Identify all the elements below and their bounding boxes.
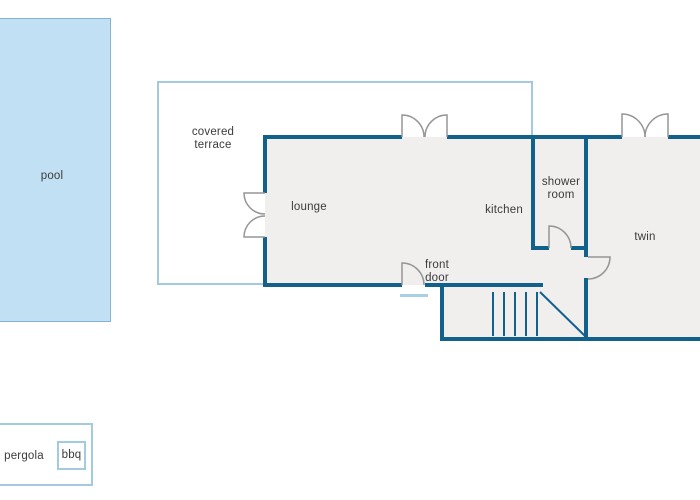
wall-segment [263,135,402,139]
twin-french-doors [622,114,668,137]
wall-segment [531,246,549,250]
pool-label: pool [14,170,90,183]
bbq-label: bbq [62,449,82,462]
wall-segment [263,135,267,193]
kitchen-label: kitchen [464,204,544,217]
bbq-area: bbq [57,441,86,470]
stairwell-floor [442,285,588,339]
wall-segment [263,283,402,287]
wall-segment [584,278,588,341]
floor-plan: bbq [0,0,700,500]
wall-segment [668,135,700,139]
wall-segment [440,285,444,341]
covered-terrace-label: covered terrace [181,126,245,152]
twin-label: twin [605,231,685,244]
wall-segment [584,135,588,257]
wall-segment [440,337,700,341]
shower-room-label: shower room [539,176,583,202]
front-door-label: front door [420,259,454,285]
entrance-step [400,294,428,297]
lounge-label: lounge [269,201,349,214]
pergola-label: pergola [0,450,58,463]
wall-segment [263,237,267,287]
wall-segment [531,137,535,250]
